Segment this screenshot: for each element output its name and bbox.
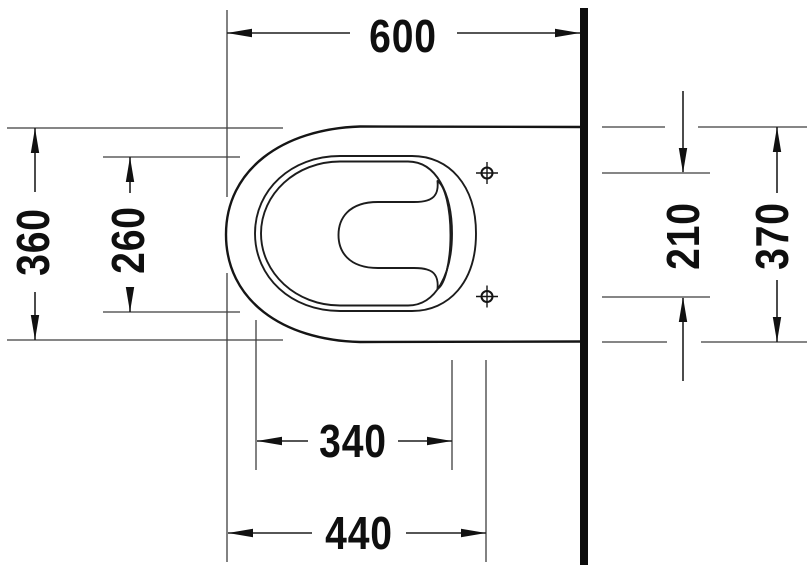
dim-260-label: 260 — [103, 206, 155, 274]
dim-370-label: 370 — [747, 202, 799, 270]
dim-370-arrow-bottom — [773, 317, 781, 342]
dim-440-arrow-left — [228, 529, 253, 537]
dim-340-arrow-right — [427, 437, 452, 445]
dim-600-arrow-right — [555, 29, 580, 37]
dim-360-arrow-top — [31, 128, 39, 153]
dim-360-arrow-bottom — [31, 315, 39, 340]
dim-600-arrow-left — [227, 29, 252, 37]
wall-line — [580, 8, 588, 565]
dim-210: 210 — [602, 91, 710, 381]
dim-360-label: 360 — [8, 208, 60, 276]
dim-260-arrow-top — [126, 157, 134, 182]
toilet-technical-drawing: 600 360 260 210 — [0, 0, 809, 572]
technical-drawing-page: 600 360 260 210 — [0, 0, 809, 572]
dim-600-label: 600 — [369, 11, 437, 63]
dim-210-arrow-top — [679, 148, 687, 173]
dim-210-arrow-bottom — [679, 297, 687, 322]
dim-260: 260 — [103, 157, 240, 312]
dim-210-label: 210 — [658, 202, 710, 270]
toilet-body-outline — [226, 127, 584, 343]
dim-260-arrow-bottom — [126, 287, 134, 312]
dim-340-arrow-left — [257, 437, 282, 445]
dim-340-label: 340 — [319, 416, 387, 468]
seat-opening-outline — [261, 162, 452, 306]
dim-600: 600 — [227, 10, 580, 562]
dim-440-label: 440 — [325, 508, 393, 560]
dim-440-arrow-right — [461, 529, 486, 537]
bowl-inner-outline — [339, 181, 451, 289]
toilet-outline — [226, 127, 584, 343]
fixing-hole-top — [476, 162, 498, 184]
dim-370-arrow-top — [773, 127, 781, 152]
fixing-hole-bottom — [476, 286, 498, 308]
